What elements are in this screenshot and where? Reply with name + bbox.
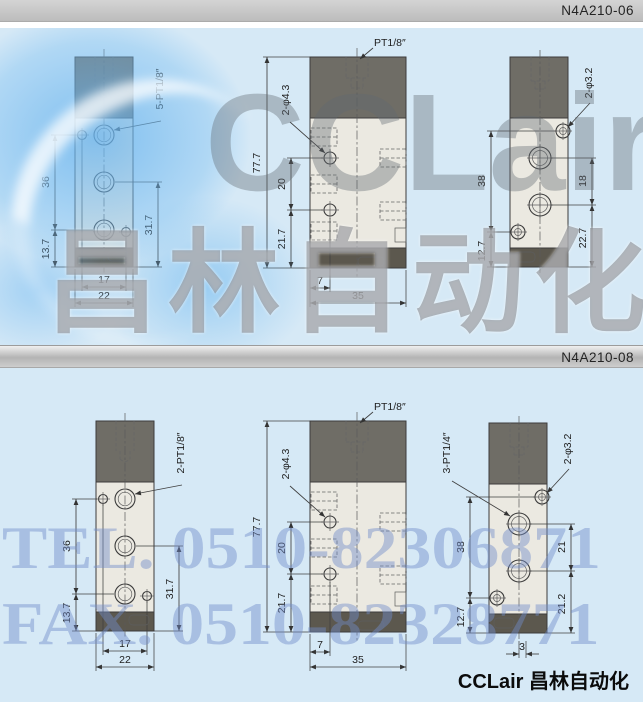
svg-text:36: 36: [61, 540, 73, 552]
svg-text:20: 20: [276, 542, 288, 554]
svg-text:35: 35: [352, 290, 364, 302]
svg-text:13.7: 13.7: [40, 239, 52, 260]
svg-text:12.7: 12.7: [476, 241, 488, 262]
svg-text:35: 35: [352, 654, 364, 666]
svg-text:PT1/8″: PT1/8″: [374, 37, 406, 49]
svg-text:38: 38: [455, 541, 467, 553]
svg-text:38: 38: [476, 175, 488, 187]
svg-text:18: 18: [577, 175, 589, 187]
svg-text:20: 20: [276, 178, 288, 190]
svg-text:21.7: 21.7: [276, 593, 288, 614]
svg-text:22.7: 22.7: [577, 228, 589, 249]
svg-text:22: 22: [119, 654, 131, 666]
svg-text:21.7: 21.7: [276, 229, 288, 250]
model-header-mid: N4A210-08: [0, 345, 643, 368]
svg-text:36: 36: [40, 176, 52, 188]
svg-text:22: 22: [98, 290, 110, 302]
svg-text:2-φ4.3: 2-φ4.3: [280, 84, 292, 115]
svg-text:31.7: 31.7: [164, 579, 176, 600]
catalog-page: N4A210-06 5-PT1/8″3613.731.71722 PT1/8″2…: [0, 0, 643, 702]
svg-text:12.7: 12.7: [455, 607, 467, 628]
side-view-drawing-08: PT1/8″2-φ4.377.72021.7735: [250, 394, 425, 679]
svg-text:13.7: 13.7: [61, 603, 73, 624]
back-view-drawing-08: 2-φ3.23812.72121.23-PT1/4″3: [434, 411, 599, 676]
front-view-drawing-08: 2-PT1/8″3613.731.71722: [56, 409, 231, 674]
brand-logo-text: CCLair 昌林自动化: [458, 665, 629, 694]
svg-text:77.7: 77.7: [251, 517, 263, 538]
svg-text:2-PT1/8″: 2-PT1/8″: [175, 432, 187, 473]
svg-text:2-φ3.2: 2-φ3.2: [583, 67, 595, 98]
front-view-drawing-06: 5-PT1/8″3613.731.71722: [35, 45, 210, 310]
svg-text:31.7: 31.7: [143, 215, 155, 236]
svg-text:2-φ3.2: 2-φ3.2: [562, 433, 574, 464]
svg-text:3-PT1/4″: 3-PT1/4″: [441, 432, 453, 473]
svg-text:17: 17: [98, 274, 110, 286]
side-view-drawing-06: PT1/8″2-φ4.377.72021.7735: [250, 30, 425, 315]
model-number-mid: N4A210-08: [561, 350, 634, 365]
model-header-top: N4A210-06: [0, 0, 643, 22]
svg-text:17: 17: [119, 638, 131, 650]
back-view-drawing-06: 2-φ3.23812.71822.7: [455, 45, 620, 310]
svg-text:7: 7: [317, 639, 323, 651]
svg-text:21.2: 21.2: [556, 594, 568, 615]
svg-text:7: 7: [317, 275, 323, 287]
drawing-section-n4a210-06: 5-PT1/8″3613.731.71722 PT1/8″2-φ4.377.72…: [0, 28, 643, 345]
model-number-top: N4A210-06: [561, 3, 634, 18]
svg-text:3: 3: [519, 641, 525, 653]
svg-text:PT1/8″: PT1/8″: [374, 401, 406, 413]
svg-text:77.7: 77.7: [251, 153, 263, 174]
drawing-section-n4a210-08: 2-PT1/8″3613.731.71722 PT1/8″2-φ4.377.72…: [0, 368, 643, 702]
svg-text:21: 21: [556, 541, 568, 553]
svg-text:2-φ4.3: 2-φ4.3: [280, 448, 292, 479]
svg-text:5-PT1/8″: 5-PT1/8″: [154, 68, 166, 109]
